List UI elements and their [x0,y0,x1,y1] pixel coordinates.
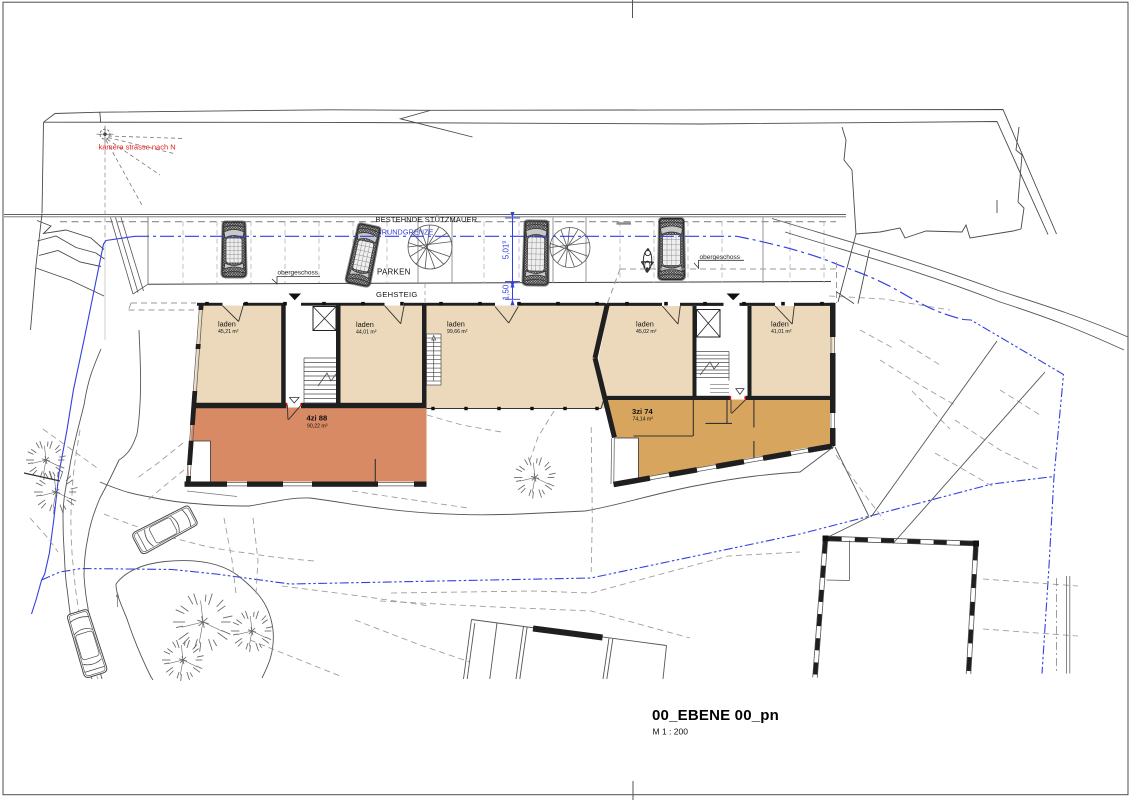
svg-text:GEHSTEIG: GEHSTEIG [376,290,418,299]
svg-text:74,14 m²: 74,14 m² [633,417,654,423]
svg-text:44,01 m²: 44,01 m² [356,330,377,336]
svg-text:4zi 88: 4zi 88 [307,414,328,423]
svg-text:laden: laden [447,320,465,329]
svg-text:45,02 m²: 45,02 m² [636,329,657,335]
svg-text:3zi 74: 3zi 74 [632,407,653,416]
svg-text:laden: laden [771,320,789,329]
svg-text:M 1 : 200: M 1 : 200 [653,727,689,737]
svg-text:laden: laden [636,320,654,329]
svg-text:kamera strasse nach N: kamera strasse nach N [99,143,176,152]
svg-text:laden: laden [218,320,236,329]
svg-text:GRUNDGRENZE: GRUNDGRENZE [376,228,434,237]
svg-text:laden: laden [356,320,374,329]
svg-text:41,01 m²: 41,01 m² [771,329,792,335]
svg-text:45,21 m²: 45,21 m² [218,329,239,335]
svg-text:obergeschoss: obergeschoss [278,269,319,276]
svg-text:BESTEHNDE STÜTZMAUER: BESTEHNDE STÜTZMAUER [376,215,478,224]
svg-text:PARKEN: PARKEN [377,268,411,277]
svg-text:90,22 m²: 90,22 m² [307,424,328,430]
svg-text:00_EBENE 00_pn: 00_EBENE 00_pn [652,707,779,724]
svg-text:1,50: 1,50 [502,284,511,300]
svg-text:99,66 m²: 99,66 m² [447,329,468,335]
